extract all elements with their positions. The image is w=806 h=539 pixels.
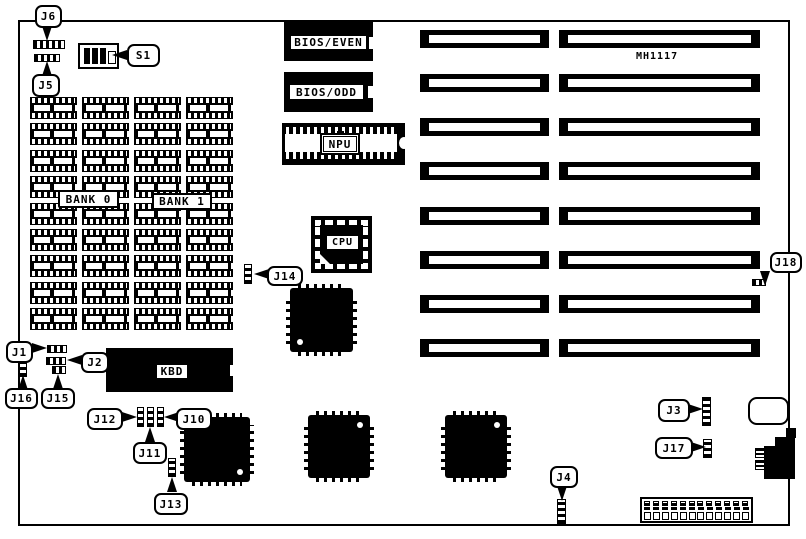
jumper-j13 — [168, 458, 176, 477]
pointer-j6 — [42, 26, 52, 41]
isa-slot-segment-long — [559, 30, 760, 48]
pointer-j13 — [167, 477, 177, 492]
jumper-label-j6-text: J6 — [41, 10, 56, 23]
cpu-pin1-dot — [315, 264, 320, 269]
kbd-notch — [230, 365, 235, 376]
qfp-pin1-dot — [494, 422, 500, 428]
memory-chip — [186, 282, 233, 304]
isa-slot-segment-short — [420, 162, 549, 180]
pointer-j18 — [760, 271, 770, 286]
npu-label: NPU — [320, 133, 360, 155]
pointer-j11 — [145, 427, 155, 442]
qfp-pin1-dot — [297, 339, 303, 345]
switch-label-s1-text: S1 — [136, 49, 151, 62]
jumper-label-j10: J10 — [176, 408, 212, 430]
jumper-j11 — [147, 407, 154, 427]
qfp-chip — [445, 415, 507, 478]
qfp-pin1-dot — [237, 469, 243, 475]
jumper-label-j16: J16 — [5, 388, 38, 409]
bios-even-notch — [369, 37, 374, 49]
memory-chip — [30, 308, 77, 330]
connector-pin-cell — [680, 512, 687, 520]
bank0-label: BANK 0 — [58, 190, 119, 208]
jumper-label-j4: J4 — [550, 466, 578, 488]
memory-chip — [82, 150, 129, 172]
connector-pin-cell — [671, 501, 677, 506]
jumper-label-j13: J13 — [154, 493, 188, 515]
jumper-label-j17-text: J17 — [663, 442, 686, 455]
memory-chip — [134, 255, 181, 277]
qfp-pin1-dot — [357, 422, 363, 428]
connector-pin-cell — [653, 512, 660, 520]
bios-odd-notch — [368, 86, 374, 98]
bank1-label-text: BANK 1 — [159, 195, 205, 208]
isa-slot-segment-short — [420, 251, 549, 269]
jumper-j10 — [157, 407, 164, 427]
isa-slot-segment-short — [420, 74, 549, 92]
memory-chip — [186, 255, 233, 277]
jumper-label-j6: J6 — [35, 5, 62, 28]
board-model-number: MH1117 — [636, 51, 678, 62]
bank0-label-text: BANK 0 — [66, 193, 112, 206]
jumper-label-j4-text: J4 — [556, 471, 571, 484]
connector-pin-cell — [733, 501, 739, 506]
connector-pin-cell — [662, 501, 668, 506]
memory-chip — [186, 123, 233, 145]
keyboard-din-connector-body — [764, 446, 795, 479]
memory-chip — [186, 97, 233, 119]
pointer-j1 — [32, 343, 47, 353]
jumper-label-j12: J12 — [87, 408, 123, 430]
memory-chip — [186, 308, 233, 330]
memory-chip — [134, 229, 181, 251]
bios-even-label-text: BIOS/EVEN — [294, 36, 363, 49]
memory-chip — [134, 150, 181, 172]
memory-chip — [30, 229, 77, 251]
pointer-j2 — [67, 355, 82, 365]
pointer-j4 — [557, 486, 567, 501]
connector-pin-cell — [724, 512, 731, 520]
jumper-j12 — [137, 407, 144, 427]
pointer-j15 — [53, 374, 63, 389]
jumper-label-j2-text: J2 — [87, 356, 102, 369]
memory-chip — [82, 255, 129, 277]
memory-chip — [30, 282, 77, 304]
jumper-label-j11: J11 — [133, 442, 167, 464]
connector-pin-cell — [742, 501, 748, 506]
connector-pin-cell — [680, 501, 686, 506]
motherboard-diagram: J6 J5 S1 BANK 0 BANK 1 BIOS/EVEN BIOS/OD… — [0, 0, 806, 539]
connector-pin-cell — [724, 501, 730, 506]
keyboard-pin-header — [755, 448, 765, 458]
cpu-chamfer — [320, 254, 330, 264]
isa-slot-segment-long — [559, 251, 760, 269]
jumper-j4 — [557, 499, 566, 524]
jumper-label-j5-text: J5 — [38, 79, 53, 92]
isa-slot-segment-long — [559, 118, 760, 136]
dip-switch-position-on — [100, 48, 106, 64]
jumper-label-j17: J17 — [655, 437, 693, 459]
connector-pin-cell — [742, 512, 749, 520]
isa-slot-segment-long — [559, 295, 760, 313]
jumper-label-j5: J5 — [32, 74, 60, 97]
connector-pin-cell — [706, 512, 713, 520]
connector-pin-cell — [671, 512, 678, 520]
jumper-label-j16-text: J16 — [10, 392, 33, 405]
isa-slot-segment-long — [559, 74, 760, 92]
pointer-j12 — [122, 412, 137, 422]
jumper-label-j15-text: J15 — [47, 392, 70, 405]
isa-slot-segment-short — [420, 30, 549, 48]
bios-odd-label-text: BIOS/ODD — [296, 86, 357, 99]
switch-label-s1: S1 — [127, 44, 160, 67]
isa-slot-segment-short — [420, 118, 549, 136]
jumper-label-j14-text: J14 — [274, 270, 297, 283]
connector-pin-cell — [662, 512, 669, 520]
jumper-j15 — [52, 366, 66, 374]
memory-chip — [30, 97, 77, 119]
jumper-j1 — [47, 345, 67, 353]
kbd-label-text: KBD — [161, 365, 184, 378]
jumper-label-j18-text: J18 — [775, 256, 798, 269]
cpu-pins-bottom — [321, 264, 362, 269]
jumper-label-j12-text: J12 — [94, 413, 117, 426]
npu-notch — [399, 137, 409, 149]
cpu-pins-right — [363, 226, 368, 263]
jumper-j2 — [46, 357, 66, 365]
memory-chip — [30, 123, 77, 145]
qfp-chip — [308, 415, 370, 478]
bottom-pin-connector — [640, 497, 753, 523]
pointer-j17 — [691, 442, 706, 452]
memory-chip — [30, 150, 77, 172]
pointer-s1 — [112, 50, 127, 60]
jumper-j6 — [33, 40, 65, 49]
jumper-label-j1-text: J1 — [12, 346, 27, 359]
connector-pin-cell — [697, 501, 703, 506]
connector-pin-cell — [644, 512, 651, 520]
qfp-chip — [290, 288, 353, 352]
connector-pin-cell — [644, 501, 650, 506]
jumper-label-j13-text: J13 — [160, 498, 183, 511]
connector-pin-cell — [653, 501, 659, 506]
isa-slot-segment-short — [420, 295, 549, 313]
cpu-socket: CPU — [311, 216, 372, 273]
memory-chip — [82, 123, 129, 145]
connector-pin-cell — [689, 501, 695, 506]
memory-chip — [82, 97, 129, 119]
memory-chip-grid — [30, 97, 240, 337]
jumper-j3 — [702, 397, 711, 426]
jumper-j14 — [244, 264, 252, 284]
dip-switch-position-on — [92, 48, 98, 64]
keyboard-pin-header — [755, 460, 765, 470]
memory-chip — [30, 255, 77, 277]
memory-chip — [82, 229, 129, 251]
pointer-j3 — [688, 404, 703, 414]
memory-chip — [134, 308, 181, 330]
isa-slot-segment-short — [420, 207, 549, 225]
battery-component — [748, 397, 789, 425]
memory-chip — [82, 282, 129, 304]
jumper-label-j15: J15 — [41, 388, 75, 409]
bank1-label: BANK 1 — [152, 193, 212, 210]
memory-chip — [186, 150, 233, 172]
connector-pin-cell — [706, 501, 712, 506]
jumper-label-j10-text: J10 — [183, 413, 206, 426]
connector-pin-cell — [689, 512, 696, 520]
expansion-slot-area — [420, 30, 765, 360]
jumper-label-j2: J2 — [81, 352, 109, 373]
kbd-label: KBD — [155, 363, 189, 380]
connector-pin-cell — [697, 512, 704, 520]
isa-slot-segment-long — [559, 207, 760, 225]
memory-chip — [186, 229, 233, 251]
keyboard-din-connector-step — [786, 428, 796, 438]
isa-slot-segment-long — [559, 162, 760, 180]
connector-pin-cell — [715, 501, 721, 506]
bottom-pin-connector-bar — [644, 507, 749, 510]
bios-odd-label: BIOS/ODD — [288, 83, 365, 101]
isa-slot-segment-long — [559, 339, 760, 357]
bios-even-label: BIOS/EVEN — [289, 34, 368, 51]
isa-slot-segment-short — [420, 339, 549, 357]
jumper-label-j1: J1 — [6, 341, 33, 363]
memory-chip — [82, 308, 129, 330]
jumper-label-j3-text: J3 — [666, 404, 681, 417]
connector-pin-cell — [715, 512, 722, 520]
memory-chip — [134, 97, 181, 119]
memory-chip — [134, 282, 181, 304]
npu-label-text: NPU — [323, 136, 357, 152]
memory-chip — [134, 123, 181, 145]
jumper-label-j3: J3 — [658, 399, 690, 422]
jumper-label-j11-text: J11 — [139, 447, 162, 460]
dip-switch-position-on — [84, 48, 90, 64]
jumper-label-j14: J14 — [267, 266, 303, 286]
connector-pin-cell — [733, 512, 740, 520]
jumper-label-j18: J18 — [770, 252, 802, 273]
cpu-label-text: CPU — [326, 235, 359, 250]
